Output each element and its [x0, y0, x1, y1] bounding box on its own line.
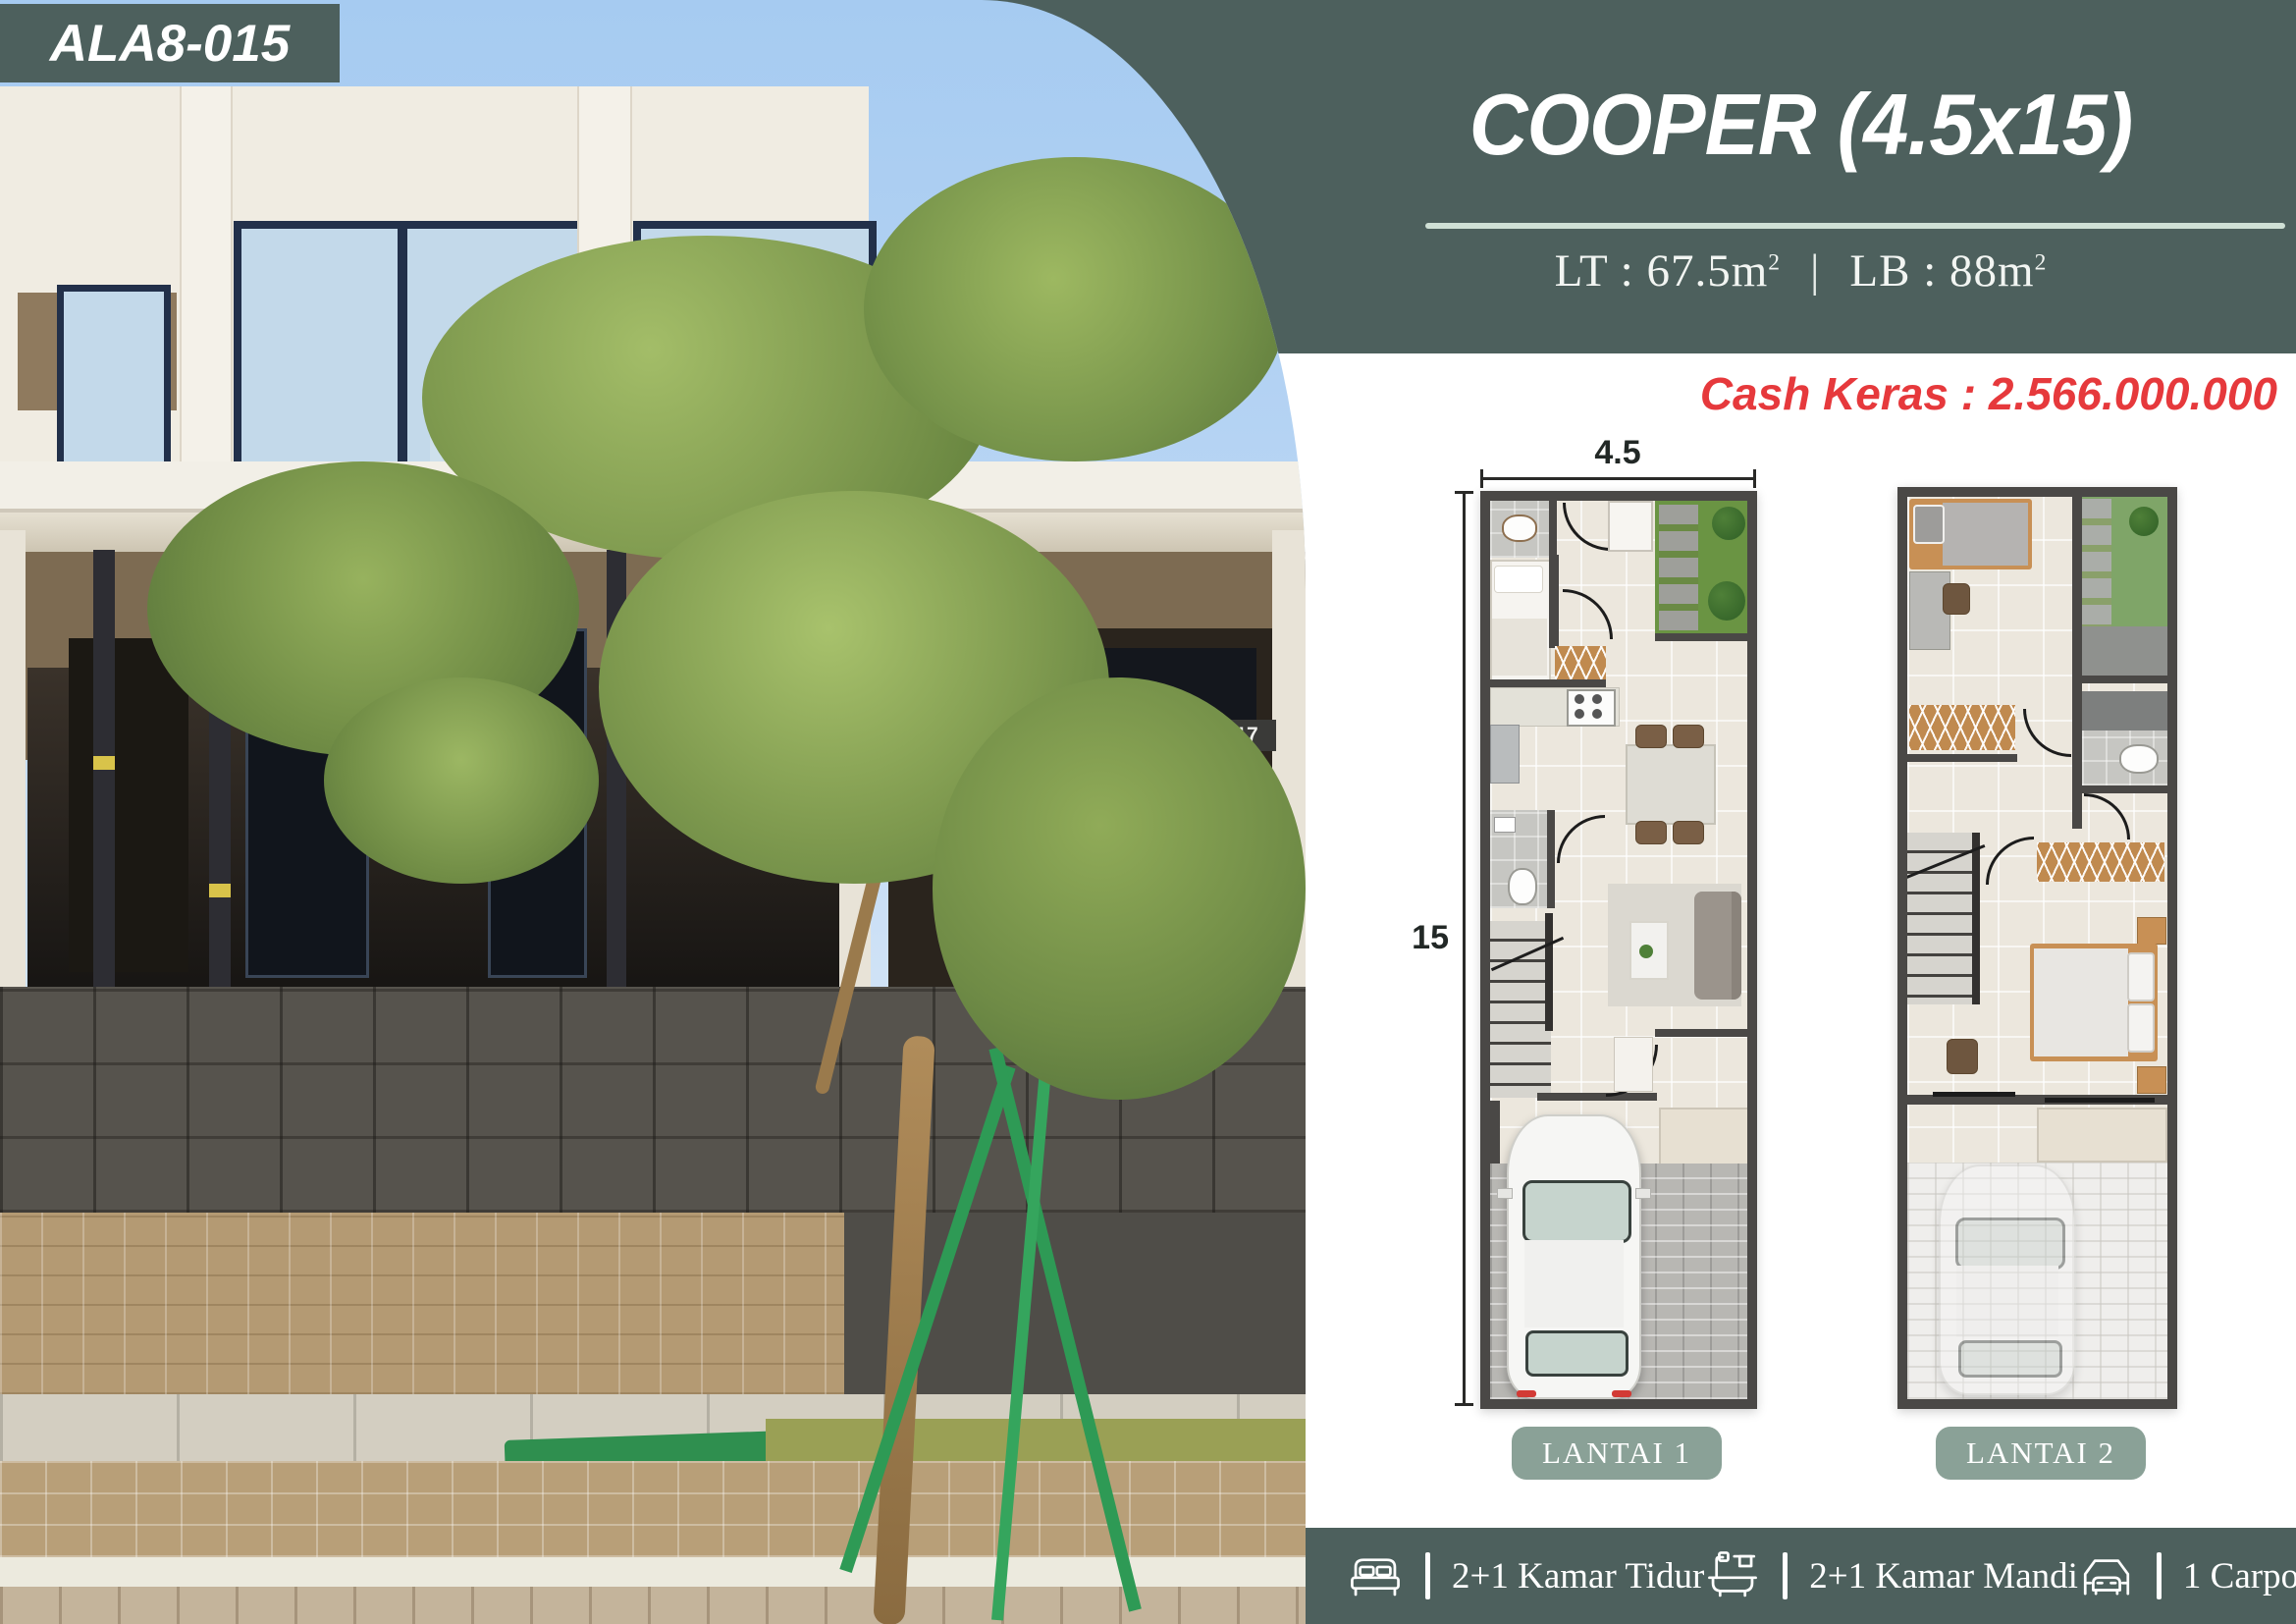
- lantai-2-button[interactable]: LANTAI 2: [1936, 1427, 2146, 1480]
- amenities-bar: 2+1 Kamar Tidur 2+1 Kamar Mandi: [1306, 1528, 2296, 1624]
- plan2-master-pillow-1: [2127, 952, 2155, 1001]
- width-dim-tick-left: [1480, 469, 1483, 488]
- carport-label: 1 Carport: [2183, 1555, 2296, 1597]
- plan2-wall-left: [1897, 487, 1907, 1409]
- plan2-void-bush: [2129, 507, 2159, 536]
- plan1-wall-right: [1747, 491, 1757, 1409]
- plan2-bed2-blanket: [1943, 503, 2028, 566]
- plan1-dining-chair-1: [1635, 725, 1667, 748]
- bathrooms-label: 2+1 Kamar Mandi: [1809, 1555, 2078, 1597]
- window-mullion: [398, 221, 407, 466]
- car-taillight-left: [1517, 1390, 1536, 1397]
- land-area-sup: 2: [1768, 249, 1781, 275]
- window-upper-left: [57, 285, 171, 481]
- bed-icon: [1347, 1547, 1404, 1604]
- plan1-wall-top: [1480, 491, 1757, 501]
- plan1-bath-sink: [1494, 817, 1516, 833]
- price-text: Cash Keras : 2.566.000.000: [1306, 367, 2277, 420]
- plan2-sliding-door-2: [2045, 1098, 2155, 1103]
- plan1-bedroom-wall: [1549, 555, 1559, 648]
- curb: [0, 1557, 1306, 1587]
- depth-dimension-label: 15: [1402, 919, 1449, 957]
- plan2-nightstand-1: [2137, 917, 2166, 945]
- plan1-wall-bottom-mid: [1537, 1093, 1657, 1101]
- plan1-stairs-railing: [1545, 913, 1553, 1031]
- plan1-garden-wall: [1655, 633, 1747, 641]
- plan2-bath-wall: [2072, 683, 2082, 829]
- depth-dimension-line: [1463, 491, 1466, 1406]
- steel-post-1: [93, 550, 115, 994]
- plan1-toilet-mid: [1508, 868, 1537, 905]
- plan2-stairs: [1907, 833, 1972, 1004]
- width-dimension-label: 4.5: [1569, 434, 1667, 472]
- plan2-stairs-railing: [1972, 833, 1980, 1004]
- plan2-ghost-car: [1939, 1164, 2076, 1395]
- plan1-sofa-back: [1732, 892, 1741, 1000]
- plan1-garden-bush-2: [1708, 581, 1745, 621]
- column-white-left: [0, 530, 26, 1001]
- plan2-hall-wall: [1907, 754, 2017, 762]
- car-roof: [1524, 1240, 1624, 1328]
- unit-code-badge: ALA8-015: [0, 4, 340, 82]
- floorplan-lantai-1: [1480, 491, 1757, 1409]
- plan1-wardrobe: [1555, 646, 1606, 679]
- plan2-wardrobe-1: [1909, 705, 2015, 750]
- tree-foliage-right: [933, 677, 1306, 1100]
- plan2-wall-bottom: [1897, 1399, 2177, 1409]
- page-title: COOPER (4.5x15): [1335, 75, 2266, 175]
- glass-door-left: [69, 638, 188, 972]
- amenity-carport: 1 Carport: [2078, 1547, 2296, 1604]
- car-windshield: [1522, 1180, 1630, 1243]
- amenity-separator-3: [2157, 1552, 2162, 1599]
- plan1-stove-burner-3: [1575, 709, 1584, 719]
- bedrooms-label: 2+1 Kamar Tidur: [1452, 1555, 1704, 1597]
- plan1-wall-left: [1480, 491, 1490, 1409]
- plan2-desk-chair: [1943, 583, 1970, 615]
- plan1-wall-right-bottom: [1655, 1029, 1747, 1037]
- plan2-sliding-door-1: [1933, 1092, 2015, 1097]
- car-mirror-left: [1497, 1188, 1513, 1199]
- plan1-dining-chair-3: [1635, 821, 1667, 844]
- plan1-garden-bush-1: [1712, 507, 1745, 540]
- building-area: LB : 88m: [1849, 245, 2034, 297]
- plan2-master-mattress: [2034, 948, 2128, 1056]
- car-icon: [2078, 1547, 2135, 1604]
- width-dimension-line: [1480, 477, 1756, 480]
- plan1-bathmid-wall: [1547, 810, 1555, 908]
- plan2-bed2-pillow: [1913, 505, 1945, 544]
- plan2-wall-right: [2167, 487, 2177, 1409]
- plan2-master-pillow-2: [2127, 1003, 2155, 1053]
- bathtub-icon: [1704, 1547, 1761, 1604]
- floorplan-lantai-2: [1897, 487, 2177, 1409]
- plan1-bed-pillow: [1494, 566, 1543, 593]
- lantai-1-button[interactable]: LANTAI 1: [1512, 1427, 1722, 1480]
- area-specs: LT : 67.5m2|LB : 88m2: [1306, 244, 2296, 298]
- plan2-shower: [2082, 691, 2167, 731]
- plan1-toilet-top: [1502, 514, 1537, 542]
- plan1-stove-burner-1: [1575, 694, 1584, 704]
- plan2-wall-top: [1897, 487, 2177, 497]
- plan2-wardrobe-2: [2037, 842, 2164, 882]
- land-area: LT : 67.5m: [1555, 245, 1769, 297]
- plan1-car: [1507, 1114, 1641, 1399]
- plan1-porch-pad: [1659, 1108, 1751, 1166]
- tree-foliage-lower-left: [324, 677, 599, 884]
- plan1-dining-chair-2: [1673, 725, 1704, 748]
- plan2-void-stones: [2082, 499, 2111, 626]
- plan1-dining-table: [1626, 744, 1716, 825]
- plan1-garden-stones: [1659, 505, 1698, 630]
- plan1-bath-wall: [1549, 501, 1557, 560]
- plan1-wall-bottom: [1480, 1399, 1757, 1409]
- width-dim-tick-right: [1753, 469, 1756, 488]
- plan1-bed-blanket: [1492, 619, 1547, 676]
- plan1-stove-burner-4: [1592, 709, 1602, 719]
- ghost-car-rear-window: [1958, 1340, 2063, 1379]
- car-taillight-right: [1612, 1390, 1631, 1397]
- tree-foliage-top-right: [864, 157, 1286, 461]
- ghost-car-windshield: [1955, 1218, 2065, 1270]
- plan1-table-plant: [1639, 945, 1653, 958]
- plan2-nightstand-2: [2137, 1066, 2166, 1094]
- plan2-bath-wall-bottom: [2072, 785, 2167, 793]
- street-bottom: [0, 1587, 1306, 1624]
- amenity-bathrooms: 2+1 Kamar Mandi: [1704, 1547, 2078, 1604]
- plan1-wall-stub: [1490, 1101, 1500, 1164]
- car-mirror-right: [1635, 1188, 1651, 1199]
- facade-pier-1: [180, 86, 233, 471]
- plan1-door-mat: [1614, 1037, 1653, 1092]
- depth-dim-tick-bottom: [1455, 1403, 1473, 1406]
- house-photo: 15 17: [0, 0, 1306, 1624]
- plan2-void-wall: [2072, 497, 2082, 683]
- plan1-sink-unit: [1490, 725, 1520, 784]
- flyer-canvas: 15 17 ALA8-015 COOPER (4.5x15) LT : 67.5…: [0, 0, 2296, 1624]
- steel-post-1-tape: [93, 756, 115, 770]
- spec-separator: |: [1810, 244, 1820, 298]
- plan1-mid-wall: [1490, 679, 1606, 687]
- plan1-entry-mat: [1608, 501, 1653, 552]
- plan2-ledge-wall: [2072, 676, 2167, 683]
- steel-post-2-tape: [209, 884, 231, 897]
- plan2-roof-ledge: [2082, 626, 2167, 676]
- depth-dim-tick-top: [1455, 491, 1473, 494]
- car-rear-window: [1525, 1330, 1629, 1377]
- amenity-bedrooms: 2+1 Kamar Tidur: [1347, 1547, 1704, 1604]
- amenity-separator-1: [1425, 1552, 1430, 1599]
- plan1-stove: [1567, 689, 1616, 727]
- plan2-chair: [1947, 1039, 1978, 1074]
- title-underline: [1425, 223, 2285, 229]
- plan1-stove-burner-2: [1592, 694, 1602, 704]
- building-area-sup: 2: [2035, 249, 2048, 275]
- amenity-separator-2: [1783, 1552, 1788, 1599]
- ghost-car-roof: [1956, 1266, 2058, 1337]
- driveway-pavers: [0, 1213, 844, 1394]
- plan2-toilet: [2119, 744, 2159, 774]
- plan1-dining-chair-4: [1673, 821, 1704, 844]
- plan2-terrace: [2037, 1108, 2167, 1163]
